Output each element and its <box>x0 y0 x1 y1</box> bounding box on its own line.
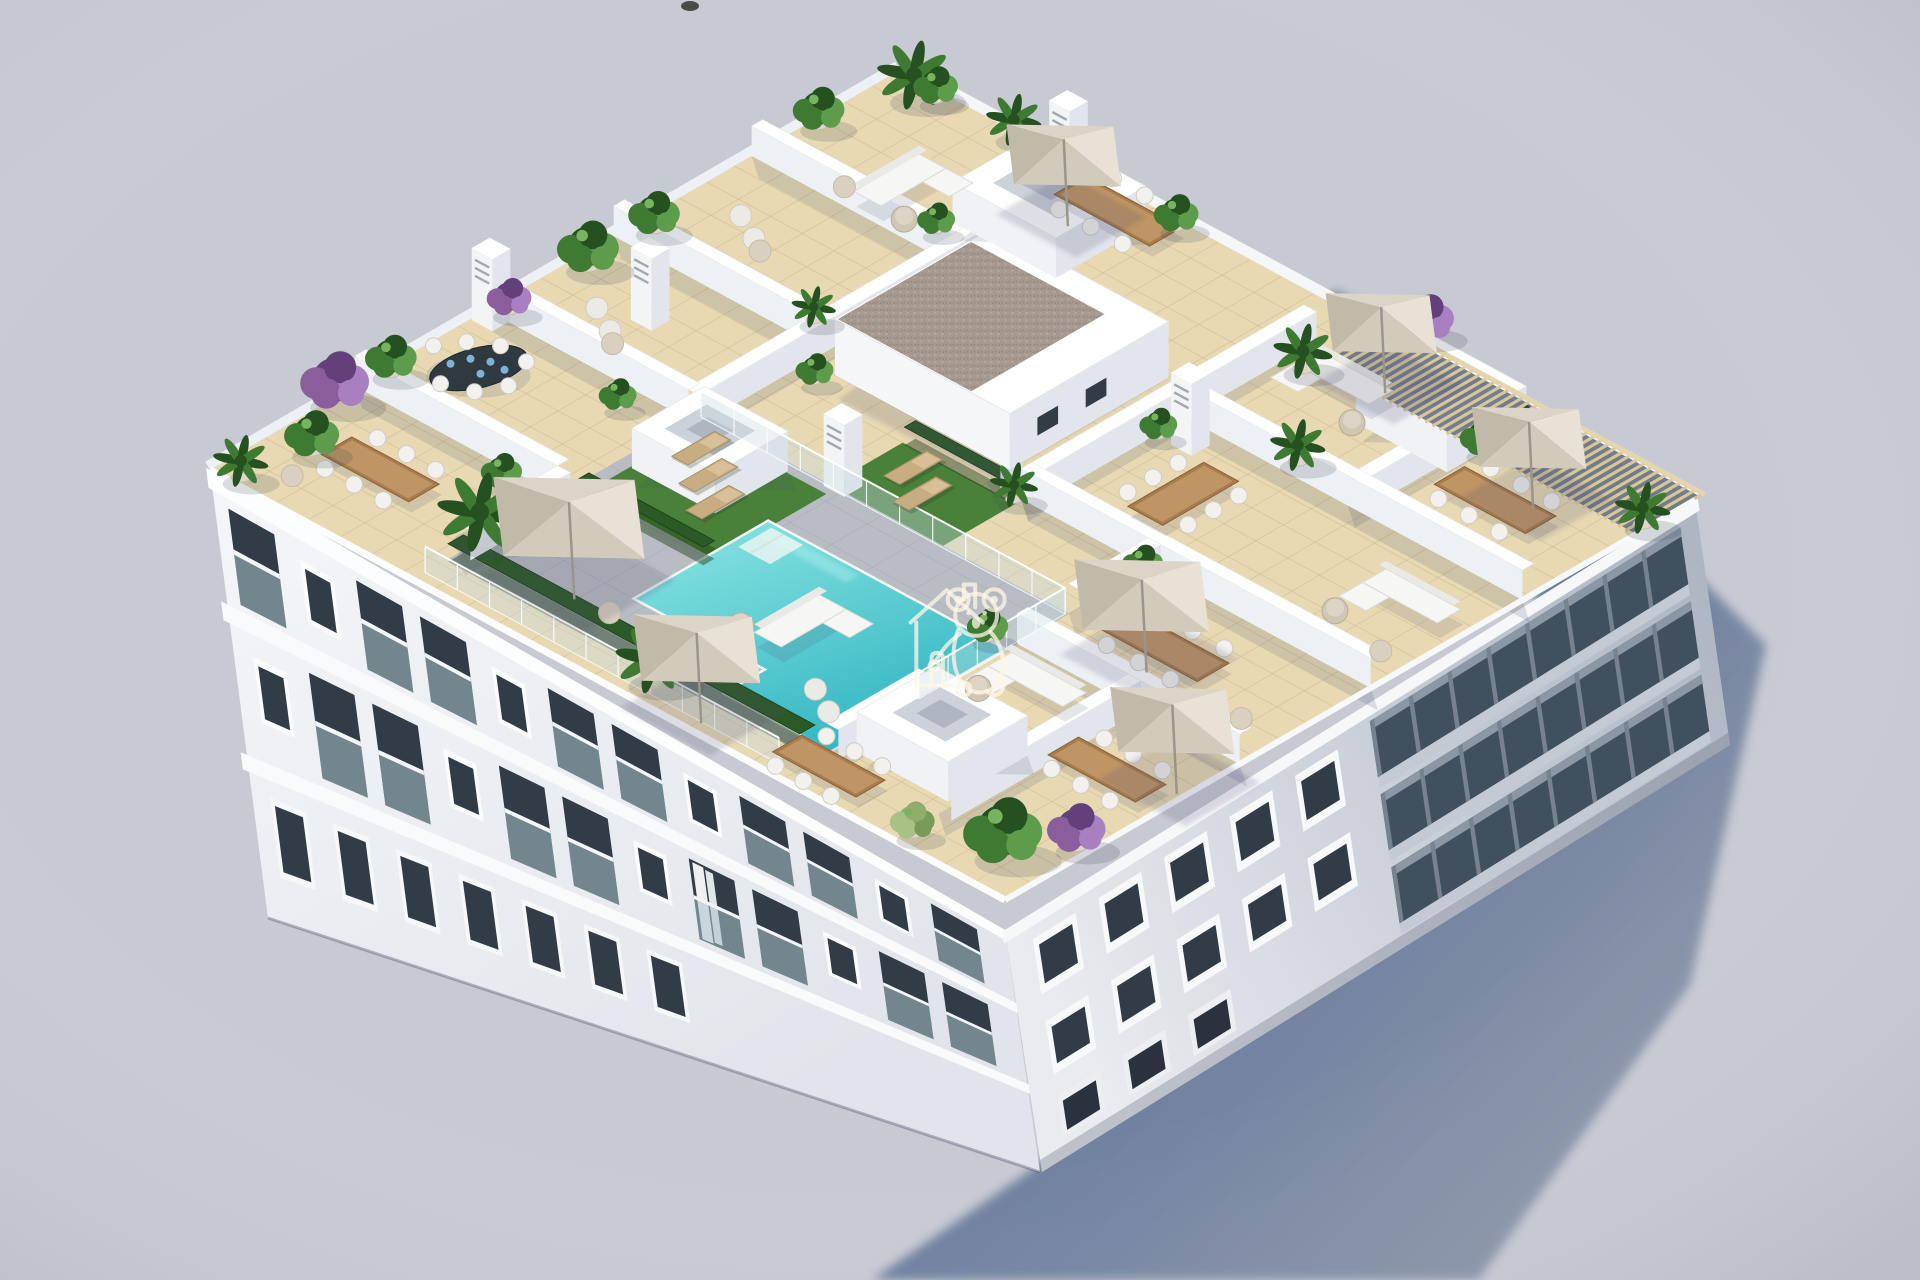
render-canvas <box>0 0 1920 1280</box>
render-3d-building <box>0 0 1920 1280</box>
vignette-overlay <box>0 0 1920 1280</box>
